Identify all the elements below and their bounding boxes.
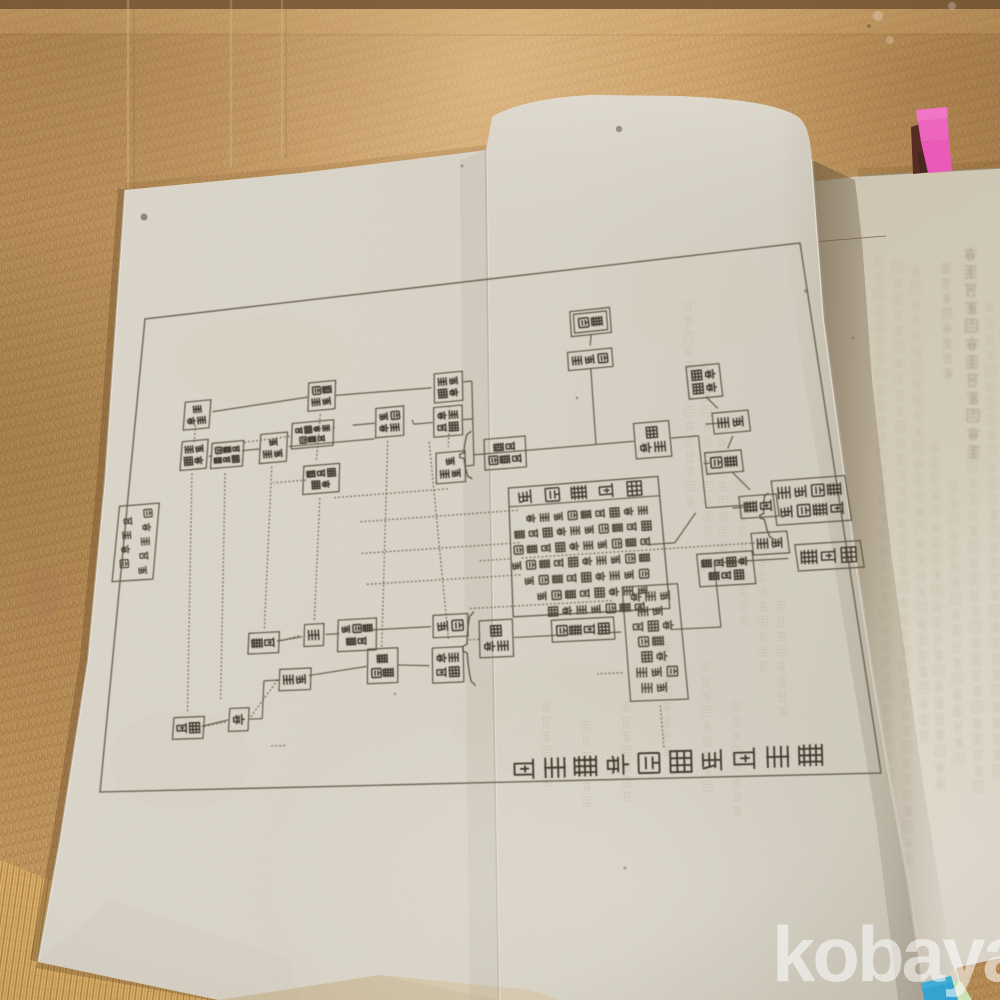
svg-text:kobaya: kobaya: [772, 910, 1000, 998]
